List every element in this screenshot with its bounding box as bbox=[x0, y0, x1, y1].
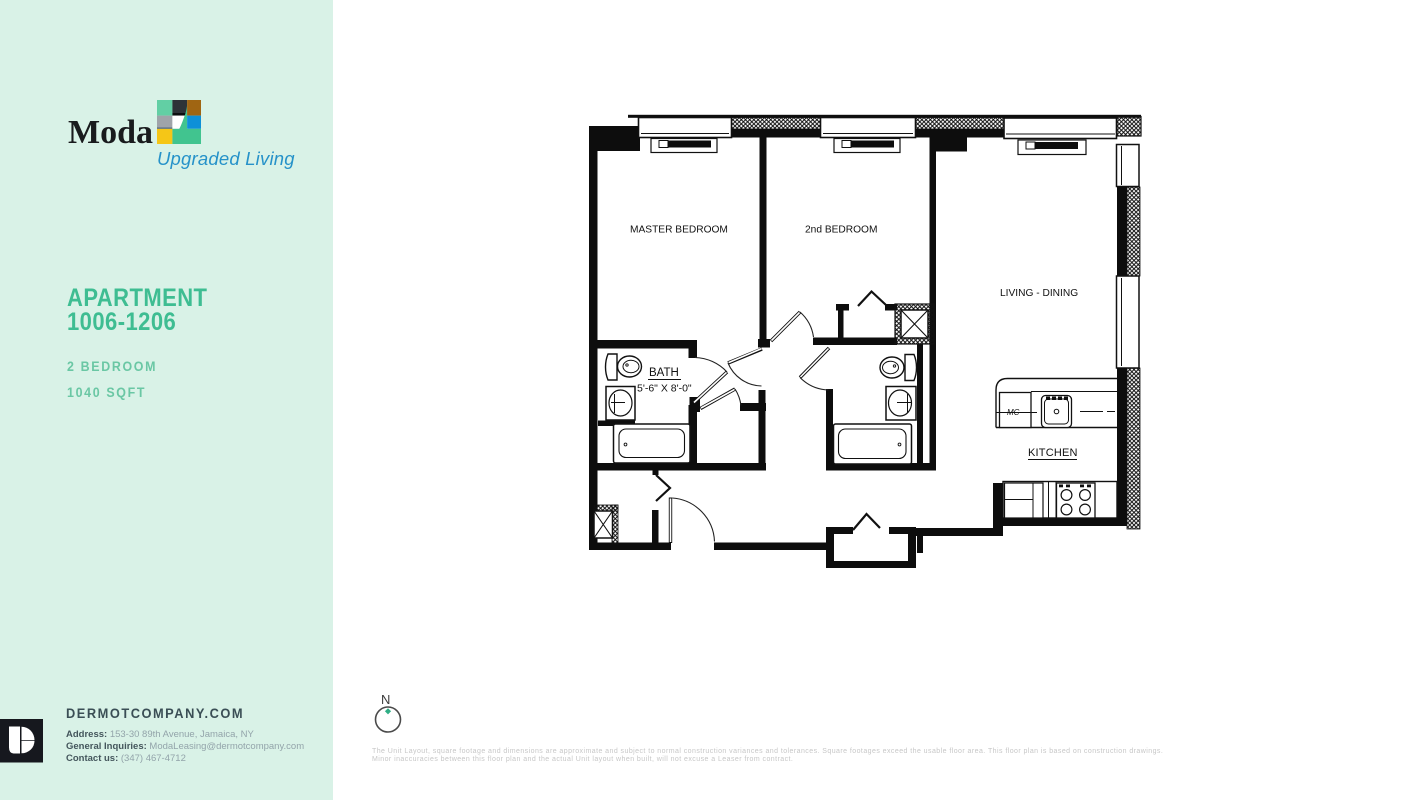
svg-text:LIVING - DINING: LIVING - DINING bbox=[1000, 288, 1078, 299]
svg-text:KITCHEN: KITCHEN bbox=[1028, 447, 1078, 459]
svg-text:MASTER BEDROOM: MASTER BEDROOM bbox=[630, 225, 728, 236]
svg-text:2nd BEDROOM: 2nd BEDROOM bbox=[805, 225, 877, 236]
svg-text:MC: MC bbox=[1007, 408, 1020, 417]
svg-text:5'-6" X 8'-0": 5'-6" X 8'-0" bbox=[637, 383, 692, 395]
svg-text:BATH: BATH bbox=[649, 367, 679, 379]
svg-text:N: N bbox=[381, 692, 390, 707]
